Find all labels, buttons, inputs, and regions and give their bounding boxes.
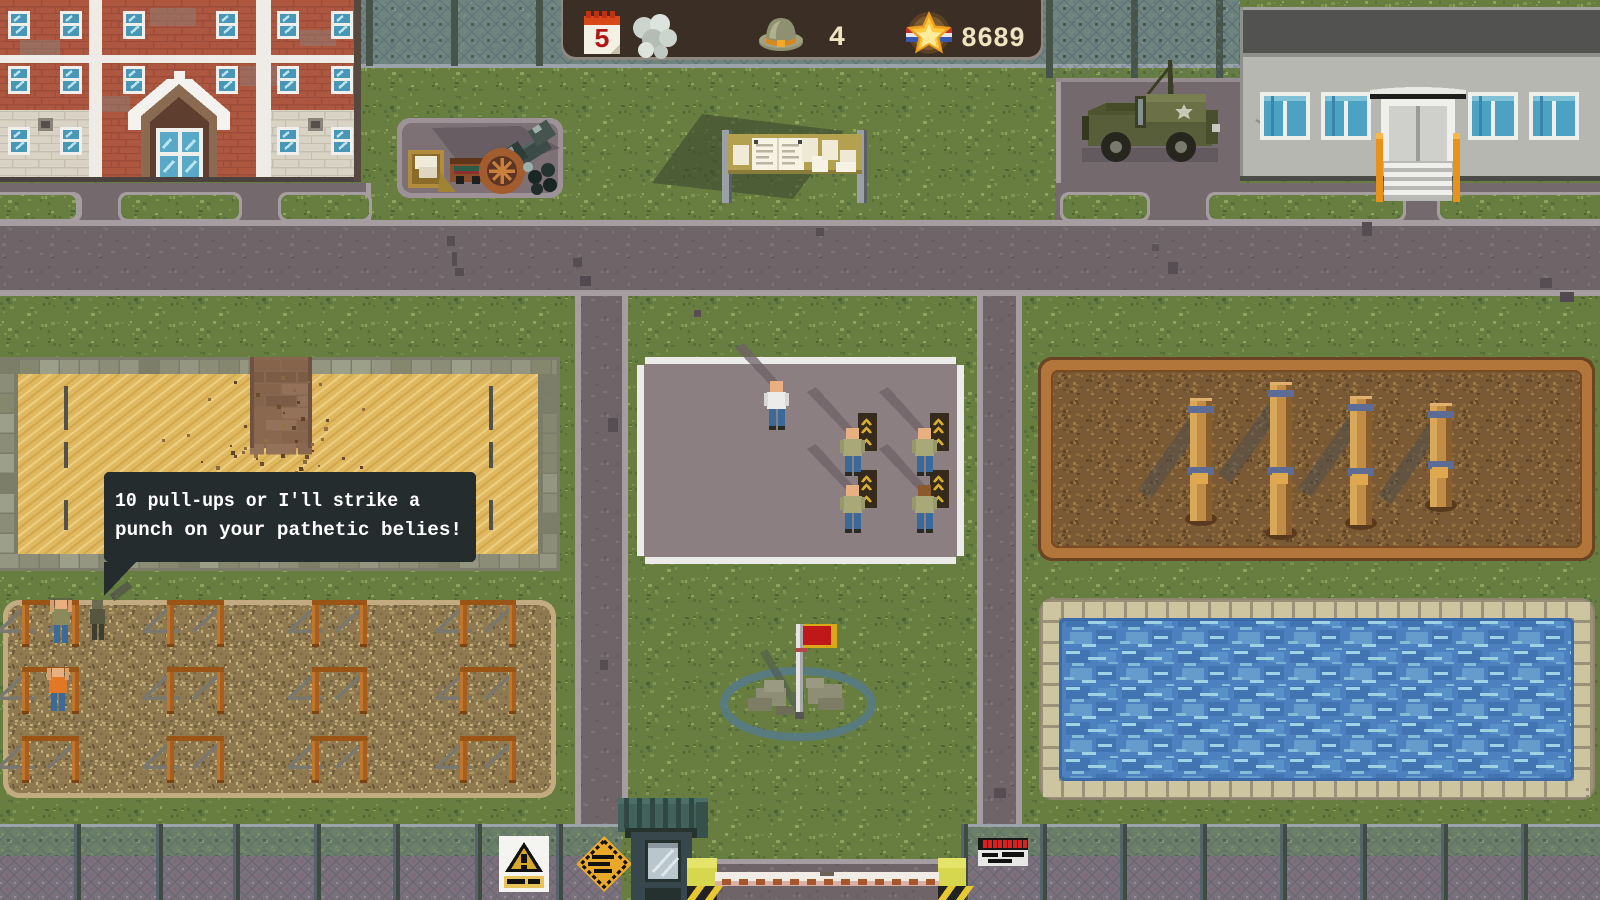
svg-text:8689: 8689 [961, 24, 1025, 55]
svg-text:10 pull-ups or I'll strike a: 10 pull-ups or I'll strike a [115, 490, 420, 512]
svg-text:4: 4 [829, 23, 846, 54]
svg-text:punch on your pathetic belies!: punch on your pathetic belies! [115, 519, 462, 541]
svg-text:5: 5 [594, 26, 610, 56]
